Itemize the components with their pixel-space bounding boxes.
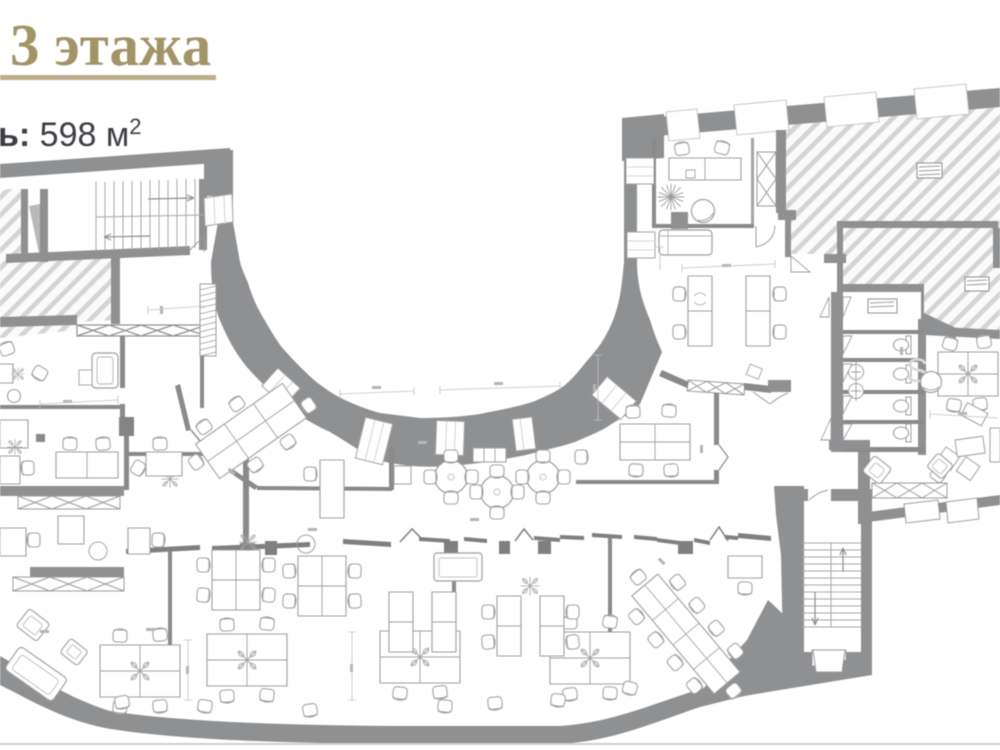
svg-text:ь: 598 м2: ь: 598 м2 <box>0 114 141 154</box>
svg-text:3 этажа: 3 этажа <box>10 12 211 78</box>
